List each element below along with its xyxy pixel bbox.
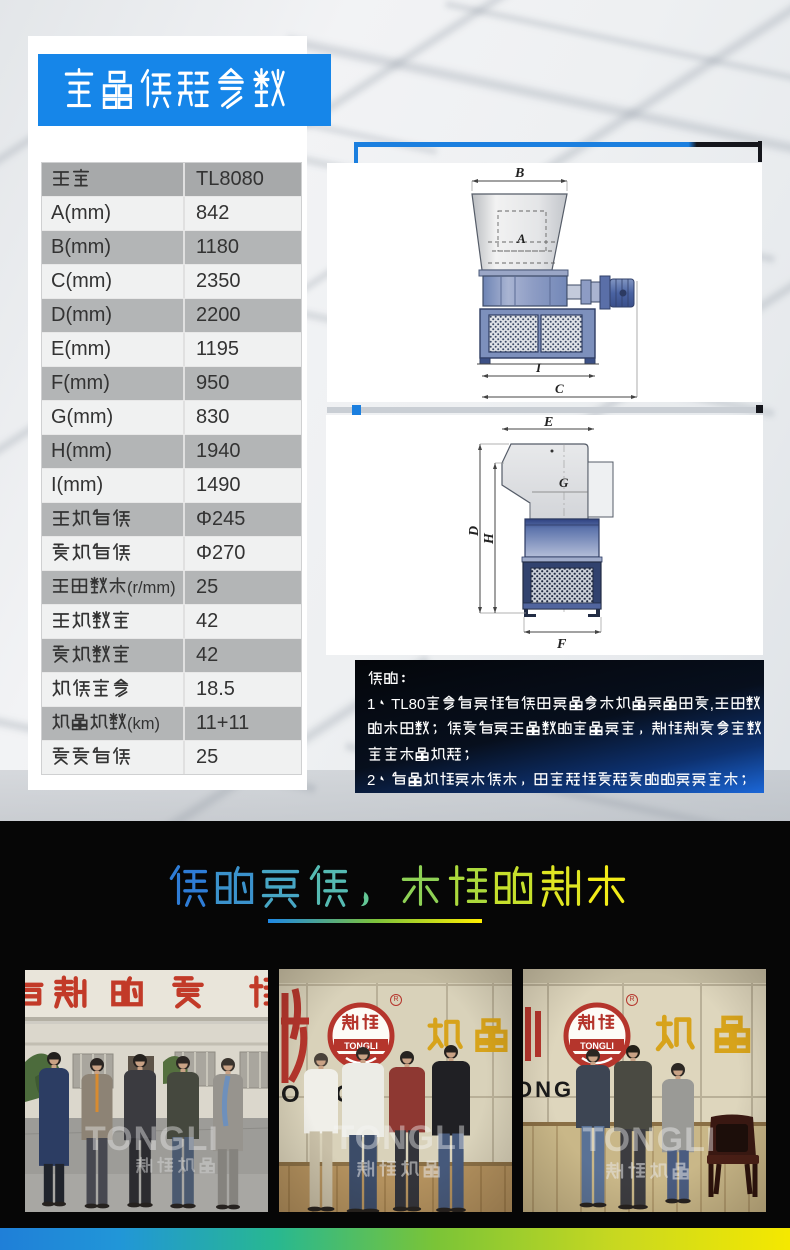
svg-text:F: F [556,637,567,652]
svg-text:B: B [514,166,524,181]
svg-text:A: A [516,231,526,246]
svg-text:C: C [555,381,564,396]
svg-text:E: E [543,415,553,430]
svg-text:I: I [535,360,542,375]
svg-text:H: H [482,532,497,545]
svg-text:D: D [467,526,482,537]
